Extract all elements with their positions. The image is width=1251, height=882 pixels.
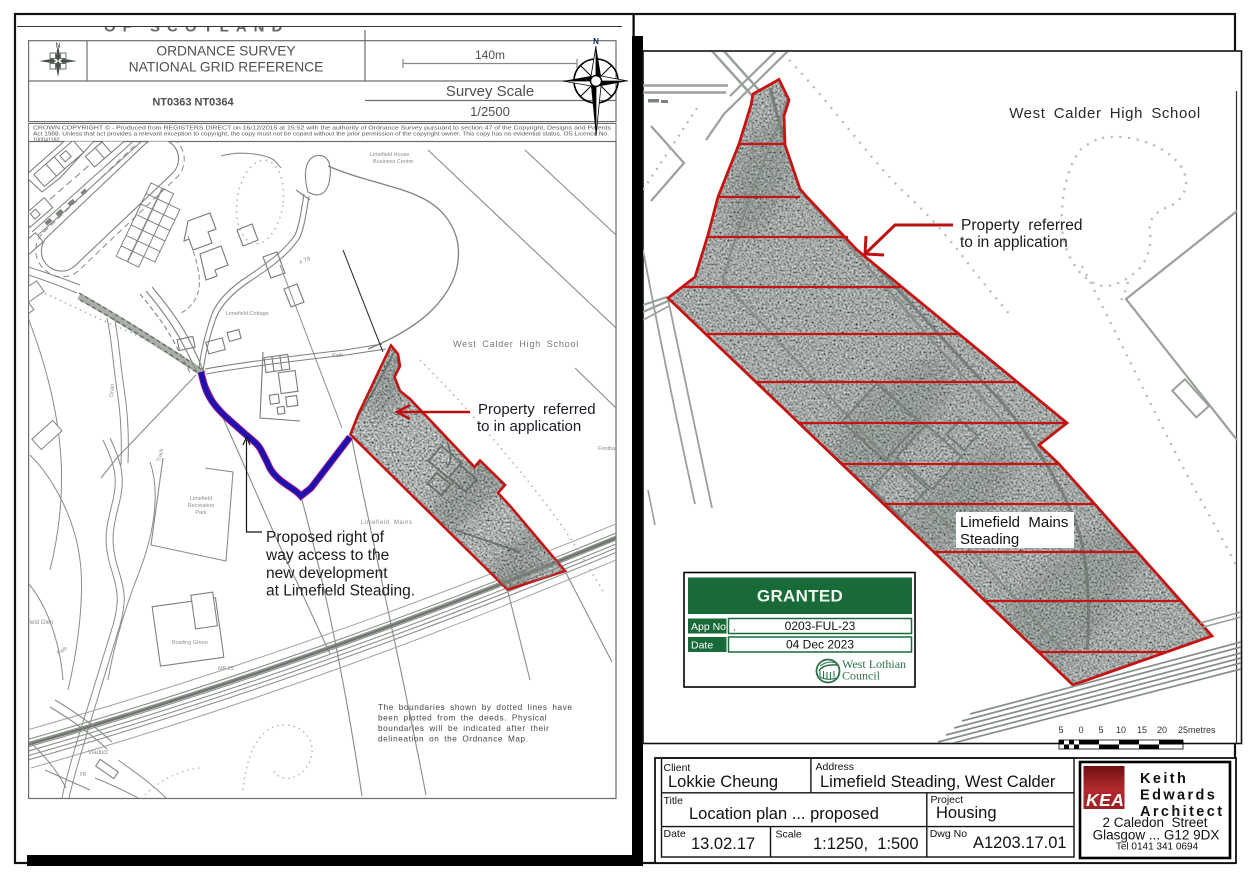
svg-text:new development: new development [266, 565, 388, 582]
svg-text:Location plan ... proposed: Location plan ... proposed [689, 805, 879, 823]
svg-text:been plotted from the deeds. P: been plotted from the deeds. Physical [378, 714, 547, 723]
svg-text:KEA: KEA [1086, 790, 1124, 810]
svg-text:15: 15 [1137, 725, 1147, 735]
svg-text:way access to the: way access to the [265, 547, 389, 564]
svg-text:Limefield: Limefield [190, 496, 212, 502]
svg-text:Address: Address [816, 761, 855, 773]
svg-text:Act 1988. Unless that act pro: Act 1988. Unless that act provides a rel… [33, 132, 609, 138]
svg-text:Limefield Steading, West Calde: Limefield Steading, West Calder [820, 773, 1056, 791]
svg-text:0203-FUL-23: 0203-FUL-23 [785, 619, 856, 633]
svg-text:Limefield Mains: Limefield Mains [960, 514, 1068, 531]
svg-text:Viaduct: Viaduct [88, 750, 108, 756]
svg-text:Limefield House: Limefield House [370, 152, 409, 158]
svg-text:Business Centre: Business Centre [373, 159, 413, 165]
svg-text:Dwg No: Dwg No [930, 828, 968, 840]
svg-text:5: 5 [1058, 725, 1063, 735]
svg-text:FB: FB [80, 772, 87, 778]
svg-text:Drain: Drain [109, 384, 116, 398]
svg-text:10: 10 [1116, 725, 1126, 735]
svg-text:OF SCOTLAND: OF SCOTLAND [104, 19, 289, 36]
svg-text:Glasgow ... G12 9DX: Glasgow ... G12 9DX [1093, 828, 1220, 843]
svg-text:04 Dec 2023: 04 Dec 2023 [786, 638, 854, 652]
svg-text:Tel 0141 341 0694: Tel 0141 341 0694 [1116, 842, 1199, 853]
svg-text:140m: 140m [475, 48, 505, 62]
svg-text:0: 0 [1078, 725, 1083, 735]
svg-text:CROWN COPYRIGHT © - Produced f: CROWN COPYRIGHT © - Produced from REGIST… [33, 125, 611, 132]
svg-text:Bowling Green: Bowling Green [172, 640, 208, 646]
svg-text:GRANTED: GRANTED [757, 587, 843, 606]
svg-text:to in application: to in application [477, 418, 581, 435]
svg-text:Date: Date [664, 828, 686, 840]
svg-text:Title: Title [664, 795, 684, 807]
svg-text:.: . [733, 622, 736, 634]
svg-text:1/2500: 1/2500 [470, 104, 510, 119]
svg-text:Steading: Steading [960, 531, 1019, 548]
svg-text:App No: App No [691, 621, 726, 633]
svg-text:MP 25: MP 25 [218, 666, 234, 672]
svg-text:Date: Date [691, 640, 713, 652]
svg-text:to in application: to in application [960, 234, 1068, 251]
svg-text:Council: Council [842, 669, 881, 683]
svg-text:boundaries will be indicated a: boundaries will be indicated after their [378, 724, 549, 733]
svg-text:5: 5 [1098, 725, 1103, 735]
svg-text:N: N [593, 37, 599, 46]
svg-text:Scale: Scale [776, 829, 802, 841]
svg-text:Limefield Cottage: Limefield Cottage [226, 311, 269, 317]
svg-text:20: 20 [1157, 725, 1167, 735]
svg-text:Proposed right of: Proposed right of [266, 529, 385, 546]
svg-text:Limefield Mains: Limefield Mains [361, 520, 412, 526]
svg-text:25metres: 25metres [1178, 725, 1216, 735]
svg-text:at Limefield Steading.: at Limefield Steading. [266, 583, 415, 600]
svg-text:Housing: Housing [936, 804, 997, 822]
svg-text:ORDNANCE SURVEY: ORDNANCE SURVEY [156, 44, 295, 59]
svg-text:Keith: Keith [1140, 771, 1188, 787]
svg-text:The boundaries shown by dotted: The boundaries shown by dotted lines hav… [378, 703, 573, 712]
svg-text:West Calder High School: West Calder High School [1009, 105, 1201, 122]
svg-text:Park: Park [195, 510, 207, 516]
svg-text:Property referred: Property referred [961, 217, 1082, 234]
svg-text:NT0363 NT0364: NT0363 NT0364 [152, 97, 234, 109]
svg-text:West Calder High School: West Calder High School [453, 339, 579, 349]
svg-text:NATIONAL GRID REFERENCE: NATIONAL GRID REFERENCE [129, 60, 324, 75]
svg-text:Survey Scale: Survey Scale [446, 83, 534, 100]
svg-text:1:1250, 1:500: 1:1250, 1:500 [813, 835, 919, 853]
svg-text:Edwards: Edwards [1140, 788, 1217, 804]
svg-text:Lokkie Cheung: Lokkie Cheung [668, 773, 778, 791]
svg-text:Path: Path [332, 353, 343, 359]
svg-text:Footba: Footba [598, 446, 616, 452]
svg-text:Recreation: Recreation [188, 503, 215, 509]
svg-text:Property referred: Property referred [478, 401, 596, 418]
svg-text:A1203.17.01: A1203.17.01 [973, 834, 1067, 852]
svg-text:delineation on the Ordnance Ma: delineation on the Ordnance Map. [378, 735, 529, 744]
svg-text:13.02.17: 13.02.17 [691, 835, 755, 853]
